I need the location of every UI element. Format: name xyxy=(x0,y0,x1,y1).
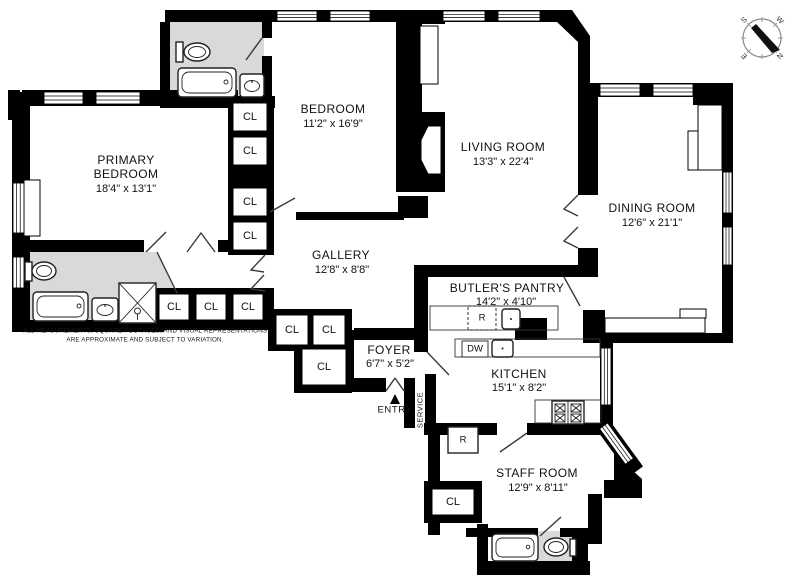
living-room-dims: 13'3" x 22'4" xyxy=(473,156,533,168)
wall-segment xyxy=(583,310,605,343)
window xyxy=(443,11,485,21)
living-room-recess xyxy=(420,26,438,84)
toilet-icon xyxy=(25,262,56,281)
disclaimer-line2: ARE APPROXIMATE AND SUBJECT TO VARIATION… xyxy=(66,337,223,344)
window xyxy=(601,348,611,405)
wall-segment xyxy=(722,97,733,343)
wall-segment xyxy=(8,90,20,120)
toilet-icon xyxy=(544,538,576,556)
wall-segment xyxy=(398,196,428,218)
dining-builtin xyxy=(605,318,705,333)
wall-segment xyxy=(404,378,415,428)
bathtub-icon xyxy=(33,292,88,321)
door-leaf xyxy=(500,433,527,452)
entry-arrow-icon xyxy=(390,394,400,404)
sink-icon xyxy=(492,340,513,357)
wall-segment xyxy=(22,240,144,252)
stove-icon xyxy=(552,401,584,424)
closet-label: CL xyxy=(167,301,181,313)
wall-segment xyxy=(354,328,428,340)
dining-niche-step xyxy=(688,131,698,170)
service-door-leaf xyxy=(427,352,449,375)
dining-room-label: DINING ROOM xyxy=(608,201,695,215)
kitchen-dims: 15'1" x 8'2" xyxy=(492,382,546,394)
closet-label: CL xyxy=(322,324,336,336)
bedroom-dims: 11'2" x 16'9" xyxy=(303,118,363,130)
bedroom-label: BEDROOM xyxy=(301,102,366,116)
wall-segment xyxy=(477,561,590,575)
staff-room-dims: 12'9" x 8'11" xyxy=(508,482,568,494)
wall-segment xyxy=(560,528,588,537)
bathtub-icon xyxy=(178,68,236,97)
window xyxy=(277,11,317,21)
shower-icon xyxy=(119,283,156,323)
bathtub-icon xyxy=(492,534,538,561)
fireplace-niche xyxy=(421,126,441,174)
window xyxy=(653,84,693,96)
closet-label: CL xyxy=(446,496,460,508)
gallery-label: GALLERY xyxy=(312,248,370,262)
wall-segment xyxy=(588,494,602,544)
french-door xyxy=(251,255,265,272)
closet-label: CL xyxy=(204,301,218,313)
primary-bedroom-dims: 18'4" x 13'1" xyxy=(96,183,156,195)
entry-door-leaf xyxy=(395,378,404,391)
foyer-dims: 6'7" x 5'2" xyxy=(366,358,414,370)
refrigerator-label: R xyxy=(460,435,467,446)
butlers-pantry-label: BUTLER'S PANTRY xyxy=(450,281,565,295)
closet-label: CL xyxy=(241,301,255,313)
kitchen-label: KITCHEN xyxy=(491,367,546,381)
wall-segment xyxy=(296,212,404,220)
compass-needle-icon xyxy=(751,24,780,53)
window xyxy=(330,11,370,21)
primary-bedroom-label: BEDROOM xyxy=(94,167,159,181)
closet-label: CL xyxy=(243,111,257,123)
primary-bedroom-label: PRIMARY xyxy=(97,153,154,167)
double-door xyxy=(187,233,215,252)
wall-segment xyxy=(425,374,436,424)
wall-segment xyxy=(556,10,590,97)
butlers-pantry-dims: 14'2" x 4'10" xyxy=(476,296,536,308)
closet-label: CL xyxy=(243,145,257,157)
sink-icon xyxy=(92,298,118,321)
compass: S W E N xyxy=(739,14,786,61)
service-label: SERVICE xyxy=(416,392,425,428)
window xyxy=(498,11,540,21)
french-door xyxy=(564,227,578,248)
entry-door-leaf xyxy=(386,378,395,391)
window xyxy=(13,183,24,233)
wall-segment xyxy=(597,333,733,343)
closet-label: CL xyxy=(317,361,331,373)
wall-segment xyxy=(396,10,445,24)
window xyxy=(723,227,732,265)
closet-label: CL xyxy=(243,230,257,242)
dining-builtin-step xyxy=(680,309,706,318)
sink-icon xyxy=(502,309,520,329)
gallery-dims: 12'8" x 8'8" xyxy=(315,264,369,276)
refrigerator-label: R xyxy=(479,313,486,324)
toilet-icon xyxy=(176,42,210,62)
wall-segment xyxy=(578,248,598,277)
wall-segment xyxy=(527,423,604,435)
living-room-label: LIVING ROOM xyxy=(461,140,545,154)
wall-segment xyxy=(262,22,272,38)
dining-room-dims: 12'6" x 21'1" xyxy=(622,217,682,229)
staff-room-label: STAFF ROOM xyxy=(496,466,578,480)
wall-segment xyxy=(160,22,170,102)
window xyxy=(44,92,83,104)
window xyxy=(13,257,24,288)
floor-plan-page: PRIMARY BEDROOM 18'4" x 13'1" BEDROOM 11… xyxy=(0,0,800,581)
window xyxy=(600,84,640,96)
foyer-label: FOYER xyxy=(367,343,410,357)
door-leaf xyxy=(146,232,166,252)
disclaimer: ALL MEASUREMENTS, SQUARE FOOTAGES, AND V… xyxy=(23,328,268,344)
disclaimer-line1: ALL MEASUREMENTS, SQUARE FOOTAGES, AND V… xyxy=(23,328,268,335)
entry-label: ENTRY xyxy=(377,405,412,416)
door-leaf xyxy=(564,277,580,306)
dishwasher-label: DW xyxy=(467,344,483,355)
closet-label: CL xyxy=(243,196,257,208)
window xyxy=(96,92,140,104)
sink-icon xyxy=(240,74,264,97)
wall-segment xyxy=(427,265,579,277)
floor-plan-drawing: PRIMARY BEDROOM 18'4" x 13'1" BEDROOM 11… xyxy=(0,0,800,581)
closet-label: CL xyxy=(285,324,299,336)
window xyxy=(723,172,732,213)
french-door xyxy=(564,195,578,216)
dining-niche xyxy=(698,105,722,170)
wall-segment xyxy=(340,378,386,392)
window-seat xyxy=(24,180,40,236)
wall-segment xyxy=(578,97,598,195)
